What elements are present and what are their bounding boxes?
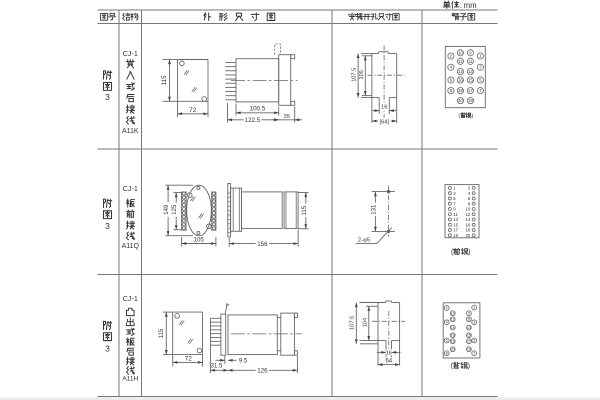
- svg-text:2: 2: [446, 306, 448, 310]
- svg-text:17: 17: [453, 228, 458, 233]
- svg-text:104: 104: [362, 318, 368, 327]
- svg-text:107.5: 107.5: [351, 68, 357, 82]
- svg-text:16: 16: [451, 334, 455, 338]
- svg-text:20: 20: [451, 348, 455, 352]
- svg-text::: :: [460, 1, 462, 10]
- svg-text:4: 4: [450, 65, 453, 70]
- svg-text:149: 149: [164, 204, 170, 215]
- svg-text:6: 6: [468, 196, 471, 201]
- svg-text:(: (: [458, 114, 460, 120]
- svg-text:3: 3: [473, 321, 475, 325]
- svg-text:5: 5: [473, 339, 475, 343]
- svg-text:9: 9: [468, 312, 470, 316]
- svg-text:20: 20: [458, 98, 463, 103]
- svg-text:13: 13: [468, 69, 473, 74]
- svg-text:126: 126: [257, 368, 268, 375]
- svg-text:31.5: 31.5: [211, 364, 223, 370]
- svg-text:19: 19: [468, 98, 473, 103]
- svg-text:4: 4: [468, 191, 471, 196]
- svg-text:19: 19: [453, 233, 458, 238]
- svg-text:10: 10: [458, 50, 463, 55]
- svg-text:2: 2: [468, 186, 471, 191]
- svg-text:7: 7: [453, 201, 456, 206]
- svg-text:CJ-1: CJ-1: [123, 49, 138, 58]
- svg-text:105: 105: [194, 237, 205, 244]
- svg-text:12: 12: [451, 318, 455, 322]
- svg-text:16: 16: [466, 222, 471, 227]
- svg-text:18: 18: [466, 228, 471, 233]
- svg-text:72: 72: [185, 355, 193, 362]
- svg-text:(: (: [451, 249, 454, 256]
- svg-text:14: 14: [458, 69, 463, 74]
- svg-text:): ): [468, 363, 470, 370]
- svg-text:18: 18: [451, 340, 455, 344]
- svg-text:mm: mm: [464, 1, 477, 10]
- svg-text:115: 115: [302, 205, 308, 215]
- svg-text:12: 12: [466, 212, 471, 217]
- svg-text:2-φ5: 2-φ5: [358, 238, 370, 244]
- svg-text:7: 7: [479, 88, 482, 93]
- svg-text:115: 115: [159, 328, 165, 338]
- svg-text:15: 15: [453, 222, 458, 227]
- svg-text:9: 9: [469, 50, 472, 55]
- svg-text:122.5: 122.5: [245, 117, 261, 124]
- svg-text:3: 3: [105, 344, 110, 354]
- svg-text:4: 4: [446, 321, 448, 325]
- svg-text:3: 3: [479, 65, 482, 70]
- svg-text:): ): [468, 249, 470, 256]
- svg-text:3: 3: [105, 92, 110, 102]
- svg-text:14: 14: [451, 326, 455, 330]
- svg-text:17: 17: [467, 340, 471, 344]
- svg-text:156: 156: [257, 241, 268, 248]
- svg-text:1: 1: [479, 54, 482, 59]
- svg-text:8: 8: [446, 352, 448, 356]
- svg-text:100.5: 100.5: [250, 106, 266, 113]
- svg-text:14: 14: [466, 217, 471, 222]
- svg-text:[64]: [64]: [379, 119, 389, 125]
- svg-text:5: 5: [479, 78, 482, 83]
- svg-text:3: 3: [453, 191, 456, 196]
- svg-text:17: 17: [468, 88, 473, 93]
- svg-text:10: 10: [451, 312, 455, 316]
- svg-text:A11K: A11K: [122, 128, 139, 135]
- svg-text:35: 35: [283, 114, 289, 120]
- svg-text:5: 5: [453, 196, 456, 201]
- svg-text:): ): [471, 114, 473, 120]
- svg-text:1: 1: [473, 306, 475, 310]
- svg-text:13: 13: [467, 326, 471, 330]
- svg-text:9.5: 9.5: [239, 359, 248, 365]
- svg-text:64: 64: [385, 359, 392, 365]
- svg-text:20: 20: [466, 233, 471, 238]
- svg-text:A11H: A11H: [122, 376, 138, 383]
- svg-text:2: 2: [450, 54, 453, 59]
- svg-text:107.5: 107.5: [350, 316, 356, 330]
- svg-text:18: 18: [458, 88, 463, 93]
- svg-text:10: 10: [466, 207, 471, 212]
- svg-text:8: 8: [468, 201, 471, 206]
- svg-text:11: 11: [467, 318, 471, 322]
- svg-text:72: 72: [189, 107, 197, 114]
- svg-text:9: 9: [453, 207, 456, 212]
- svg-text:131: 131: [371, 204, 377, 215]
- svg-text:16: 16: [381, 105, 387, 111]
- svg-text:11: 11: [468, 59, 473, 64]
- svg-text:15: 15: [468, 78, 473, 83]
- svg-text:1: 1: [453, 186, 456, 191]
- svg-text:3: 3: [105, 221, 110, 231]
- svg-text:11: 11: [453, 212, 458, 217]
- svg-text:6: 6: [450, 78, 453, 83]
- svg-text:A11Q: A11Q: [122, 243, 140, 250]
- svg-text:7: 7: [473, 352, 475, 356]
- svg-text:15: 15: [467, 334, 471, 338]
- svg-text:115: 115: [161, 75, 168, 85]
- svg-text:CJ-1: CJ-1: [123, 294, 138, 303]
- svg-text:12: 12: [458, 59, 463, 64]
- svg-text:16: 16: [458, 78, 463, 83]
- svg-text:125: 125: [172, 204, 178, 215]
- svg-text:6: 6: [446, 339, 448, 343]
- svg-text:19: 19: [467, 348, 471, 352]
- svg-text:CJ-1: CJ-1: [123, 184, 138, 193]
- svg-text:16: 16: [386, 351, 392, 357]
- svg-text:8: 8: [450, 88, 453, 93]
- svg-text:105: 105: [359, 70, 365, 79]
- svg-text:13: 13: [453, 217, 458, 222]
